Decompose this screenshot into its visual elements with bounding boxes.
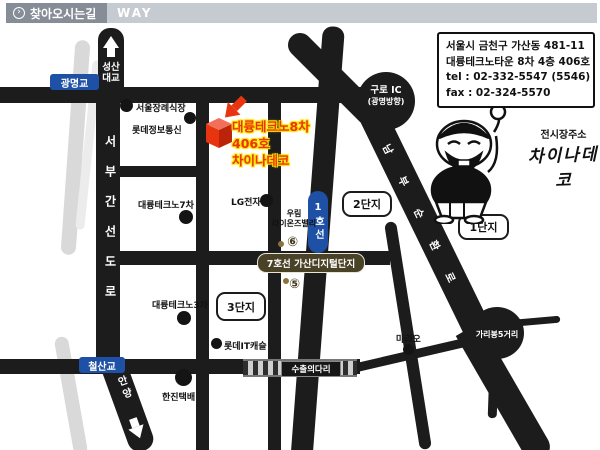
page-title: 찾아오시는길 [30, 5, 96, 22]
landmark-dot [260, 194, 273, 207]
landmark-funeral: 서울장례식장 [136, 101, 186, 114]
exit6-number: ⑥ [287, 235, 298, 250]
mascot-illustration [406, 102, 532, 224]
seongsan-bridge-label: 성산 대교 [98, 62, 124, 84]
export-bridge-label: 수출의다리 [281, 361, 341, 377]
destination-cube-marker [204, 115, 234, 150]
destination-building: 대륭테크노8차 [232, 118, 310, 135]
landmark-hanjin: 한진택배 [162, 390, 195, 403]
landmark-dot [120, 99, 133, 112]
landmark-dot [184, 112, 196, 124]
destination-name: 차이나데코 [232, 152, 310, 169]
district-3: 3단지 [216, 292, 266, 321]
page-title-box: › 찾아오시는길 [6, 3, 107, 23]
page-subtitle: WAY [117, 6, 153, 20]
landmark-dot [403, 344, 414, 355]
garibong-junction-label: 가리봉5거리 [466, 329, 528, 340]
exhibition-name: 차이나데코 [526, 140, 600, 193]
district-2: 2단지 [342, 191, 392, 217]
station-label: 7호선 가산디지털단지 [257, 253, 365, 273]
landmark-dot [211, 338, 222, 349]
road-mid-street [108, 166, 208, 177]
exit6-dot [278, 241, 284, 247]
exit5-number: ⑤ [289, 277, 300, 292]
anyang-label: 안양 [112, 374, 135, 404]
address-info-box: 서울시 금천구 가산동 481-11 대륭테크노타운 8차 4층 406호 te… [437, 32, 595, 108]
landmark-dot [177, 311, 191, 325]
landmark-woorim: 우림 라이온즈밸리 [270, 209, 318, 229]
phone-line: tel : 02-332-5547 (5546) [446, 70, 586, 86]
landmark-lg: LG전자 [231, 195, 261, 208]
exhibition-note: 전시장주소 차이나데코 [527, 126, 600, 191]
destination-label: 대륭테크노8차 406호 차이나데코 [232, 118, 310, 169]
landmark-dot [175, 369, 192, 386]
up-arrow-icon [103, 36, 119, 57]
address-line: 대륭테크노타운 8차 4층 406호 [446, 55, 586, 71]
fax-line: fax : 02-324-5570 [446, 86, 586, 102]
gwangmyeong-bridge-label: 광명교 [50, 74, 99, 90]
down-arrow-icon [125, 416, 147, 441]
seobu-expressway-label: 서부간선도로 [102, 135, 119, 315]
landmark-lotte-info: 롯데정보통신 [132, 123, 182, 136]
landmark-dot [179, 210, 193, 224]
address-line: 서울시 금천구 가산동 481-11 [446, 39, 586, 55]
landmark-lotte-it: 롯데IT캐슬 [224, 339, 267, 352]
directions-map-page: › 찾아오시는길 WAY 안양 남부순환로 구로 IC (광명방향) 가리봉5거… [0, 0, 600, 450]
bullet-arrow-icon: › [13, 7, 25, 19]
destination-room: 406호 [232, 135, 310, 152]
cheolsan-bridge-label: 철산교 [79, 357, 125, 373]
landmark-daeryung3: 대륭테크노3차 [152, 298, 208, 311]
exhibition-label: 전시장주소 [527, 126, 600, 141]
river-shape [54, 336, 89, 450]
guro-ic-name: 구로 IC [357, 82, 415, 96]
